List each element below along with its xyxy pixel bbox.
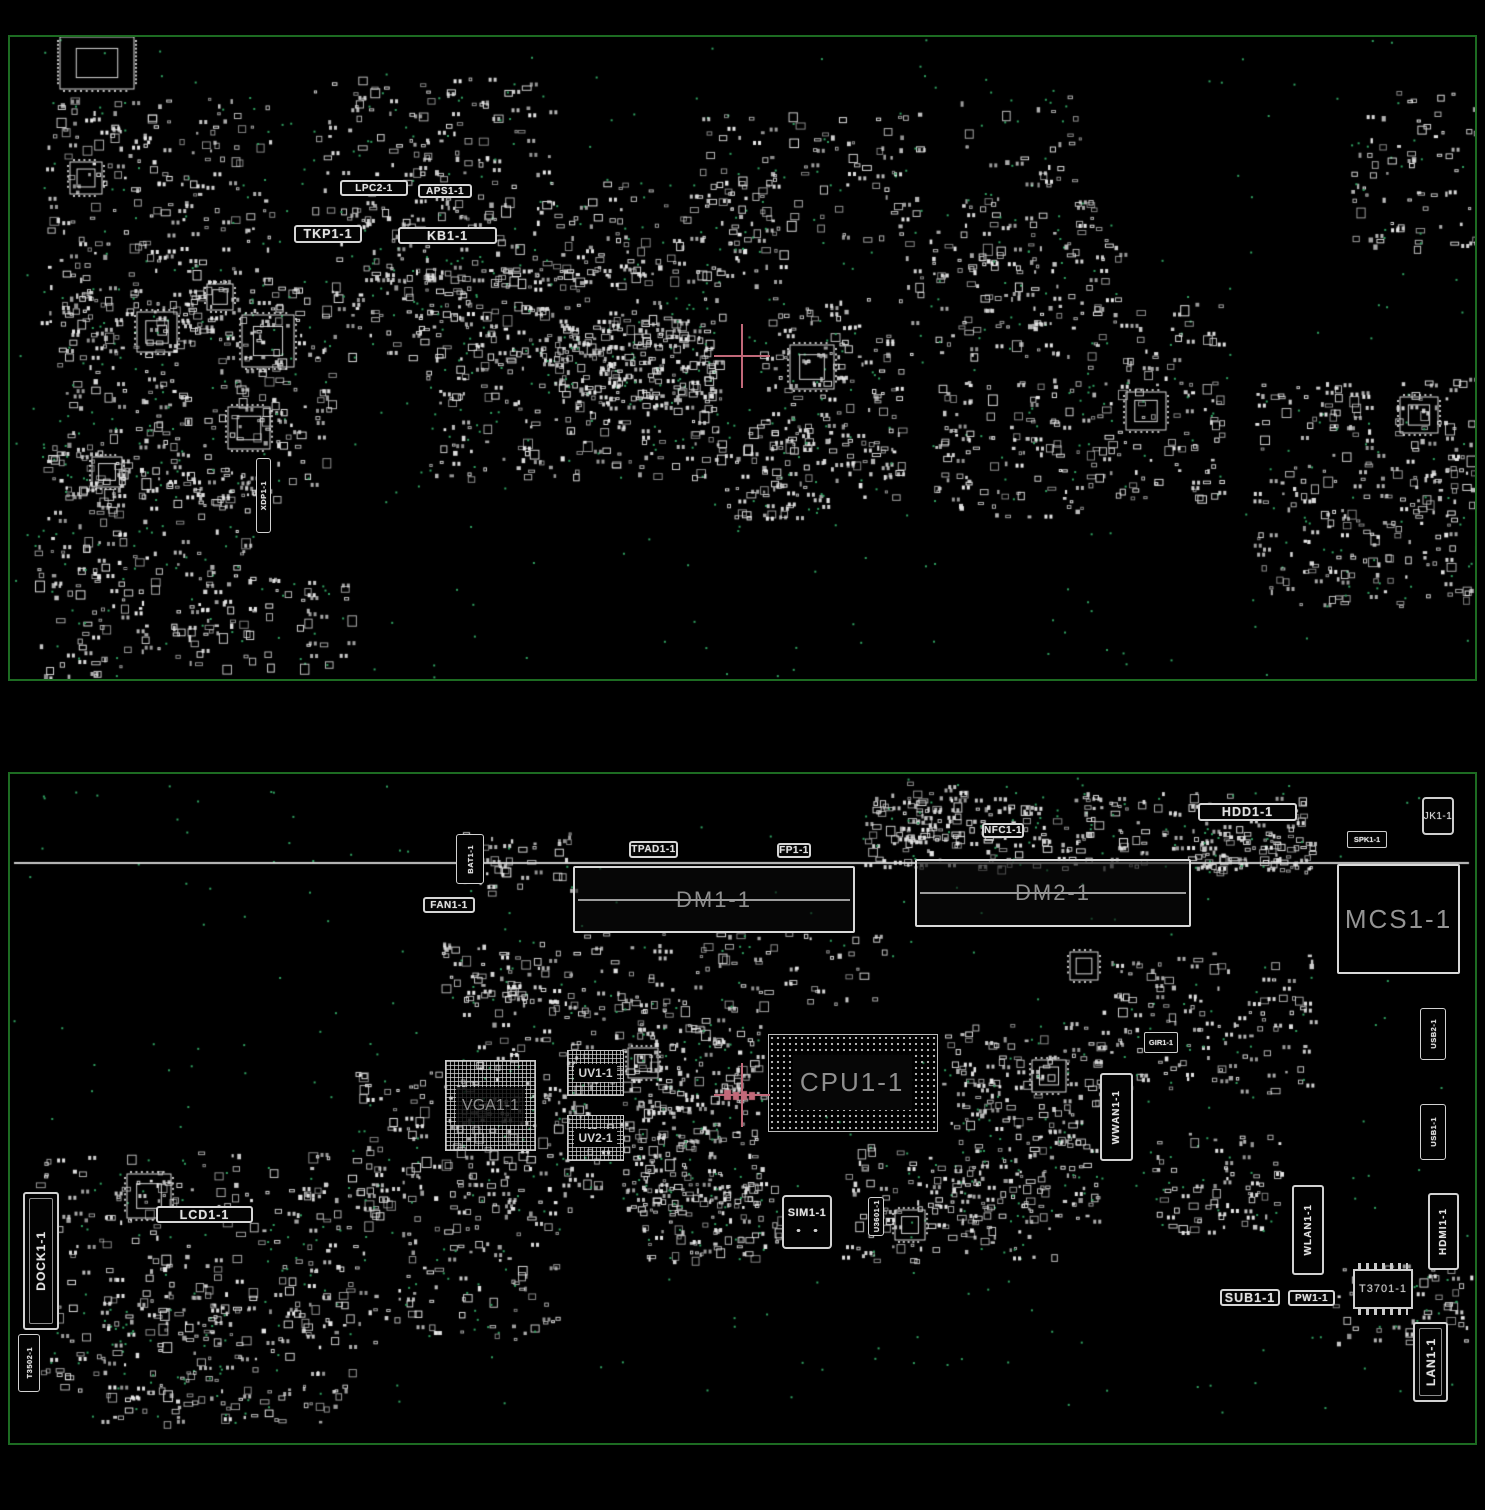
component-label: MCS1-1	[1345, 904, 1452, 935]
component-label: JK1-1	[1424, 811, 1453, 822]
component-label: XDP1-1	[259, 481, 268, 510]
component-u3601-1[interactable]: U3601-1	[868, 1197, 884, 1236]
crosshair-v-line	[741, 1063, 743, 1127]
component-hdd1-1[interactable]: HDD1-1	[1198, 803, 1297, 821]
component-label: FP1-1	[779, 845, 809, 856]
component-label: DOCK1-1	[34, 1231, 48, 1291]
boardview-stage: LPC2-1APS1-1TKP1-1KB1-1XDP1-1BAT1-1FAN1-…	[0, 0, 1485, 1510]
component-label: GIR1-1	[1149, 1038, 1173, 1047]
component-fp1-1[interactable]: FP1-1	[777, 843, 811, 858]
component-tpad1-1[interactable]: TPAD1-1	[629, 841, 678, 858]
component-label: USB1-1	[1429, 1117, 1438, 1147]
component-label: USB2-1	[1429, 1019, 1438, 1049]
component-wlan1-1[interactable]: WLAN1-1	[1292, 1185, 1324, 1275]
sim-contact-pads	[790, 1223, 825, 1244]
component-uv2-1[interactable]: UV2-1	[567, 1115, 624, 1161]
component-label: HDD1-1	[1222, 805, 1273, 819]
component-label: LAN1-1	[1424, 1338, 1438, 1386]
component-spk1-1[interactable]: SPK1-1	[1347, 831, 1387, 848]
component-lcd1-1[interactable]: LCD1-1	[156, 1206, 253, 1223]
component-label: CPU1-1	[800, 1067, 904, 1098]
component-nfc1-1[interactable]: NFC1-1	[982, 823, 1024, 838]
component-label: U3601-1	[872, 1200, 881, 1232]
component-dm1-1[interactable]: DM1-1	[573, 866, 855, 933]
component-label: FAN1-1	[430, 900, 467, 911]
component-aps1-1[interactable]: APS1-1	[418, 184, 472, 198]
component-bat1-1[interactable]: BAT1-1	[456, 834, 484, 884]
component-label: T3502-1	[25, 1347, 34, 1378]
slot-center-line	[920, 892, 1186, 894]
crosshair-v-line	[741, 324, 743, 388]
component-usb1-1[interactable]: USB1-1	[1420, 1104, 1446, 1160]
component-label: WWAN1-1	[1111, 1090, 1122, 1144]
component-lan1-1[interactable]: LAN1-1	[1413, 1322, 1448, 1402]
component-label: HDMI1-1	[1438, 1208, 1449, 1255]
component-label: UV1-1	[574, 1064, 616, 1082]
component-hdmi1-1[interactable]: HDMI1-1	[1428, 1193, 1459, 1270]
cpu-die-area: CPU1-1	[793, 1055, 912, 1110]
component-label: NFC1-1	[984, 825, 1022, 836]
component-sim1-1[interactable]: SIM1-1	[782, 1195, 832, 1249]
component-t3502-1[interactable]: T3502-1	[18, 1334, 40, 1392]
component-dock1-1[interactable]: DOCK1-1	[23, 1192, 59, 1330]
component-mcs1-1[interactable]: MCS1-1	[1337, 864, 1460, 974]
component-gir1-1[interactable]: GIR1-1	[1144, 1032, 1178, 1053]
component-usb2-1[interactable]: USB2-1	[1420, 1008, 1446, 1060]
component-jk1-1[interactable]: JK1-1	[1422, 797, 1454, 835]
component-label: WLAN1-1	[1303, 1204, 1314, 1255]
component-label: LCD1-1	[180, 1208, 230, 1222]
component-label: SIM1-1	[788, 1207, 826, 1219]
component-wwan1-1[interactable]: WWAN1-1	[1100, 1073, 1133, 1161]
component-label: TKP1-1	[303, 227, 352, 241]
component-vga1-1[interactable]: VGA1-1	[445, 1060, 536, 1151]
component-xdp1-1[interactable]: XDP1-1	[256, 458, 271, 533]
component-pw1-1[interactable]: PW1-1	[1288, 1290, 1335, 1306]
component-label: VGA1-1	[456, 1087, 525, 1125]
component-label: LPC2-1	[355, 183, 392, 194]
component-lpc2-1[interactable]: LPC2-1	[340, 180, 408, 196]
component-label: SPK1-1	[1354, 835, 1380, 844]
component-kb1-1[interactable]: KB1-1	[398, 227, 497, 244]
component-label: PW1-1	[1295, 1293, 1328, 1304]
component-cpu1-1[interactable]: CPU1-1	[768, 1034, 938, 1132]
component-label: APS1-1	[426, 186, 464, 197]
slot-center-line	[578, 899, 850, 901]
component-label: BAT1-1	[466, 845, 475, 874]
component-label: SUB1-1	[1225, 1291, 1275, 1305]
component-uv1-1[interactable]: UV1-1	[567, 1050, 624, 1096]
component-label: UV2-1	[574, 1129, 616, 1147]
component-label: T3701-1	[1359, 1283, 1407, 1295]
component-t3701-1[interactable]: T3701-1	[1353, 1269, 1413, 1309]
component-tkp1-1[interactable]: TKP1-1	[294, 225, 362, 243]
component-fan1-1[interactable]: FAN1-1	[423, 897, 475, 913]
component-label: TPAD1-1	[631, 844, 675, 855]
component-label: KB1-1	[427, 229, 468, 243]
component-dm2-1[interactable]: DM2-1	[915, 859, 1191, 927]
component-sub1-1[interactable]: SUB1-1	[1220, 1289, 1280, 1306]
